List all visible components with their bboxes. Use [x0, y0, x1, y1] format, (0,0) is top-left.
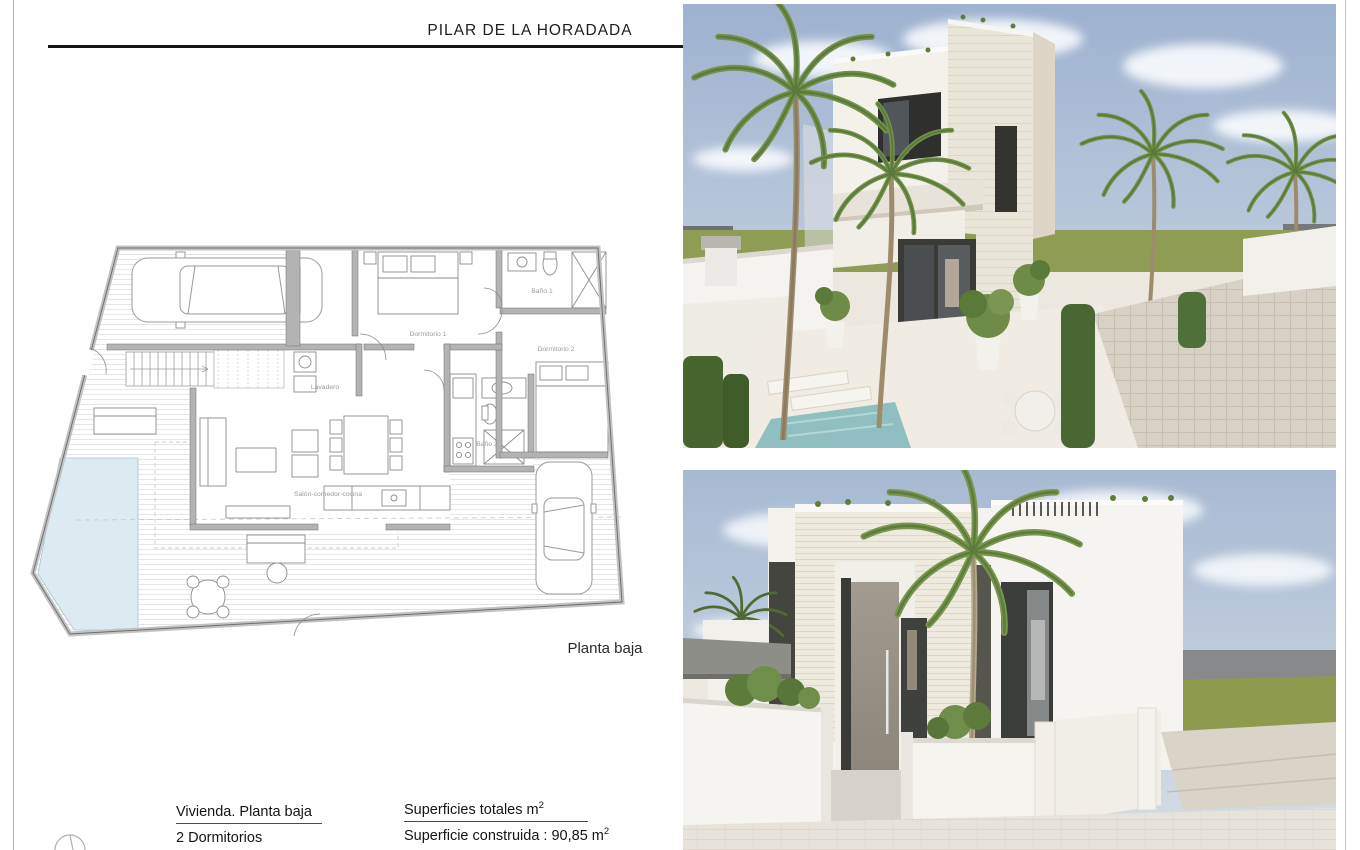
bed-dormitorio-2: [536, 362, 608, 452]
render-top-image: [683, 4, 1336, 448]
floor-plan: Dormitorio 1 Baño 1 Dormitorio 2 Lavader…: [30, 240, 660, 660]
room-label-bano-2: Baño 2: [476, 441, 498, 448]
page-title: PILAR DE LA HORADADA: [330, 22, 730, 40]
plan-caption: Planta baja: [540, 640, 670, 657]
room-label-salon: Salón-comedor-cocina: [294, 491, 362, 498]
room-label-bano-1: Baño 1: [531, 288, 553, 295]
legend-built-area: Superficie construida : 90,85 m2: [404, 826, 609, 844]
room-label-dormitorio-2: Dormitorio 2: [537, 346, 574, 353]
bed-dormitorio-1: [364, 252, 472, 314]
wall-pillar: [1138, 708, 1156, 810]
plan-sheet-page: PILAR DE LA HORADADA: [0, 0, 1360, 850]
legend-dwelling-title: Vivienda. Planta baja: [176, 804, 322, 824]
driveway-car: [532, 462, 596, 594]
sidewalk: [1161, 722, 1336, 810]
room-label-lavadero: Lavadero: [311, 384, 340, 391]
window-right: [1001, 582, 1053, 742]
render-bottom-image: [683, 470, 1336, 850]
legend-surfaces-title: Superficies totales m2: [404, 800, 588, 822]
room-label-dormitorio-1: Dormitorio 1: [409, 331, 446, 338]
page-border-left: [13, 0, 14, 850]
north-symbol-icon: [52, 833, 90, 850]
legend-bedrooms: 2 Dormitorios: [176, 830, 262, 846]
title-rule: [48, 45, 731, 48]
stairs: [126, 352, 214, 386]
page-border-right: [1345, 0, 1346, 850]
